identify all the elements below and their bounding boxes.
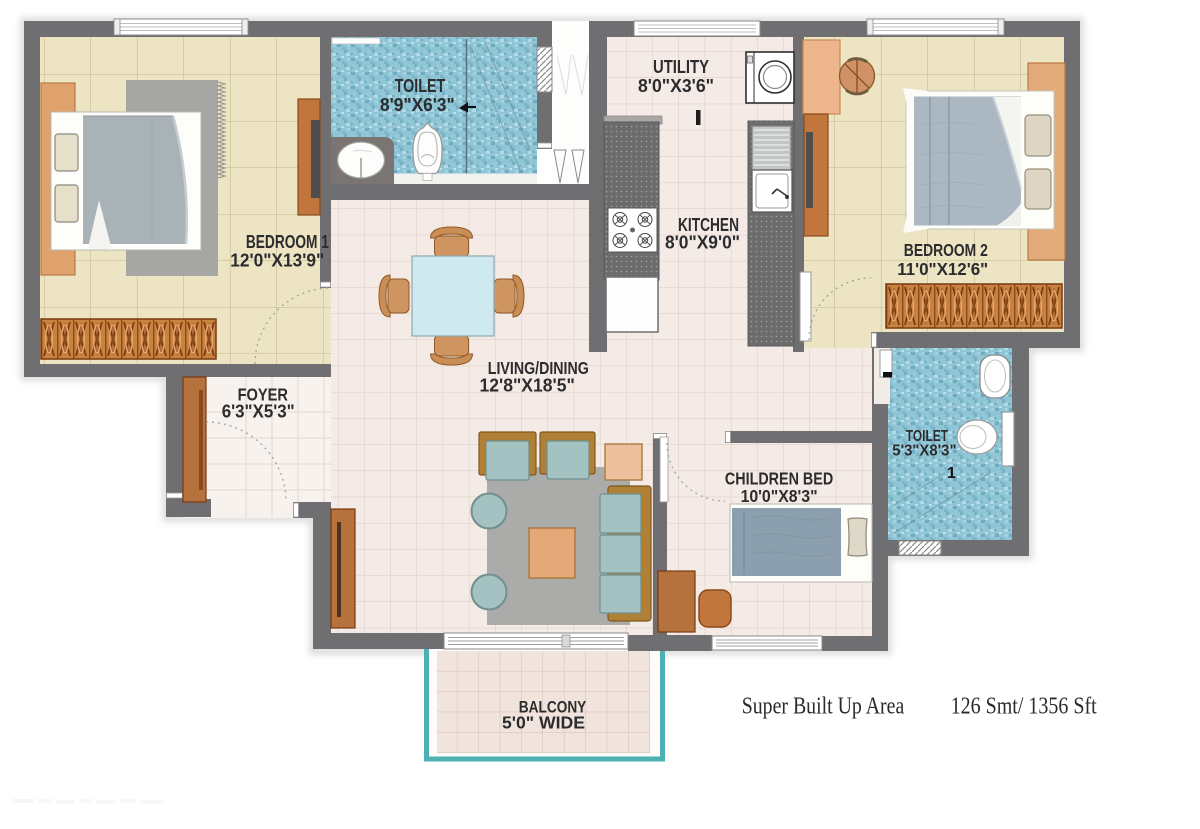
svg-text:5'3"X8'3": 5'3"X8'3" bbox=[892, 443, 956, 460]
svg-text:8'0"X3'6": 8'0"X3'6" bbox=[638, 76, 714, 96]
svg-text:10'0"X8'3": 10'0"X8'3" bbox=[741, 486, 818, 506]
svg-text:UTILITY: UTILITY bbox=[653, 57, 709, 77]
svg-text:8'0"X9'0": 8'0"X9'0" bbox=[665, 233, 740, 253]
svg-text:11'0"X12'6": 11'0"X12'6" bbox=[897, 259, 988, 279]
svg-text:6'3"X5'3": 6'3"X5'3" bbox=[222, 402, 295, 422]
svg-text:1: 1 bbox=[947, 465, 956, 482]
svg-text:126 Smt/ 1356 Sft: 126 Smt/ 1356 Sft bbox=[951, 693, 1097, 720]
svg-text:Super Built Up Area: Super Built Up Area bbox=[742, 693, 905, 720]
svg-text:5'0" WIDE: 5'0" WIDE bbox=[502, 713, 585, 733]
svg-text:12'8"X18'5": 12'8"X18'5" bbox=[480, 375, 575, 395]
svg-text:12'0"X13'9": 12'0"X13'9" bbox=[230, 250, 324, 271]
svg-text:BEDROOM 2: BEDROOM 2 bbox=[904, 240, 988, 260]
svg-text:TOILET: TOILET bbox=[395, 76, 446, 96]
svg-text:8'9"X6'3": 8'9"X6'3" bbox=[380, 95, 455, 115]
